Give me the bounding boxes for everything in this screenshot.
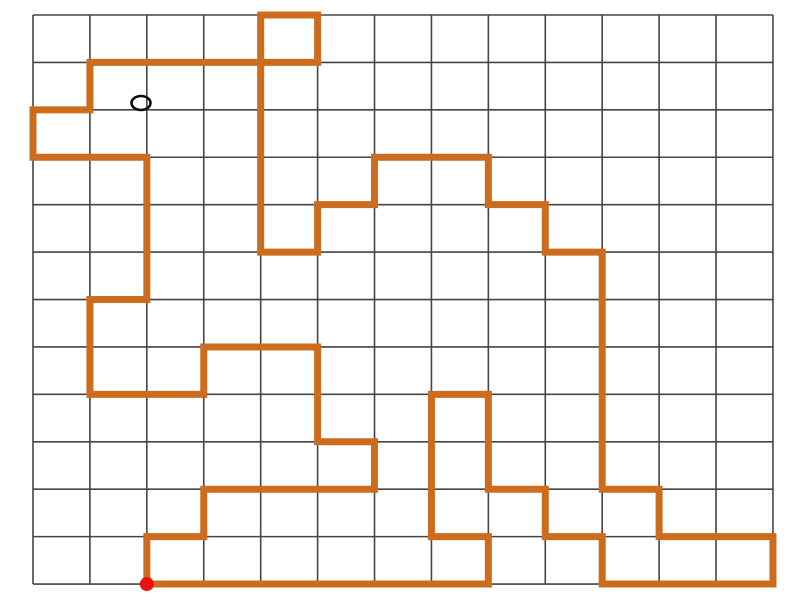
red-start-dot	[140, 577, 154, 591]
puzzle-canvas	[0, 0, 800, 600]
grid-route-svg	[0, 0, 800, 600]
